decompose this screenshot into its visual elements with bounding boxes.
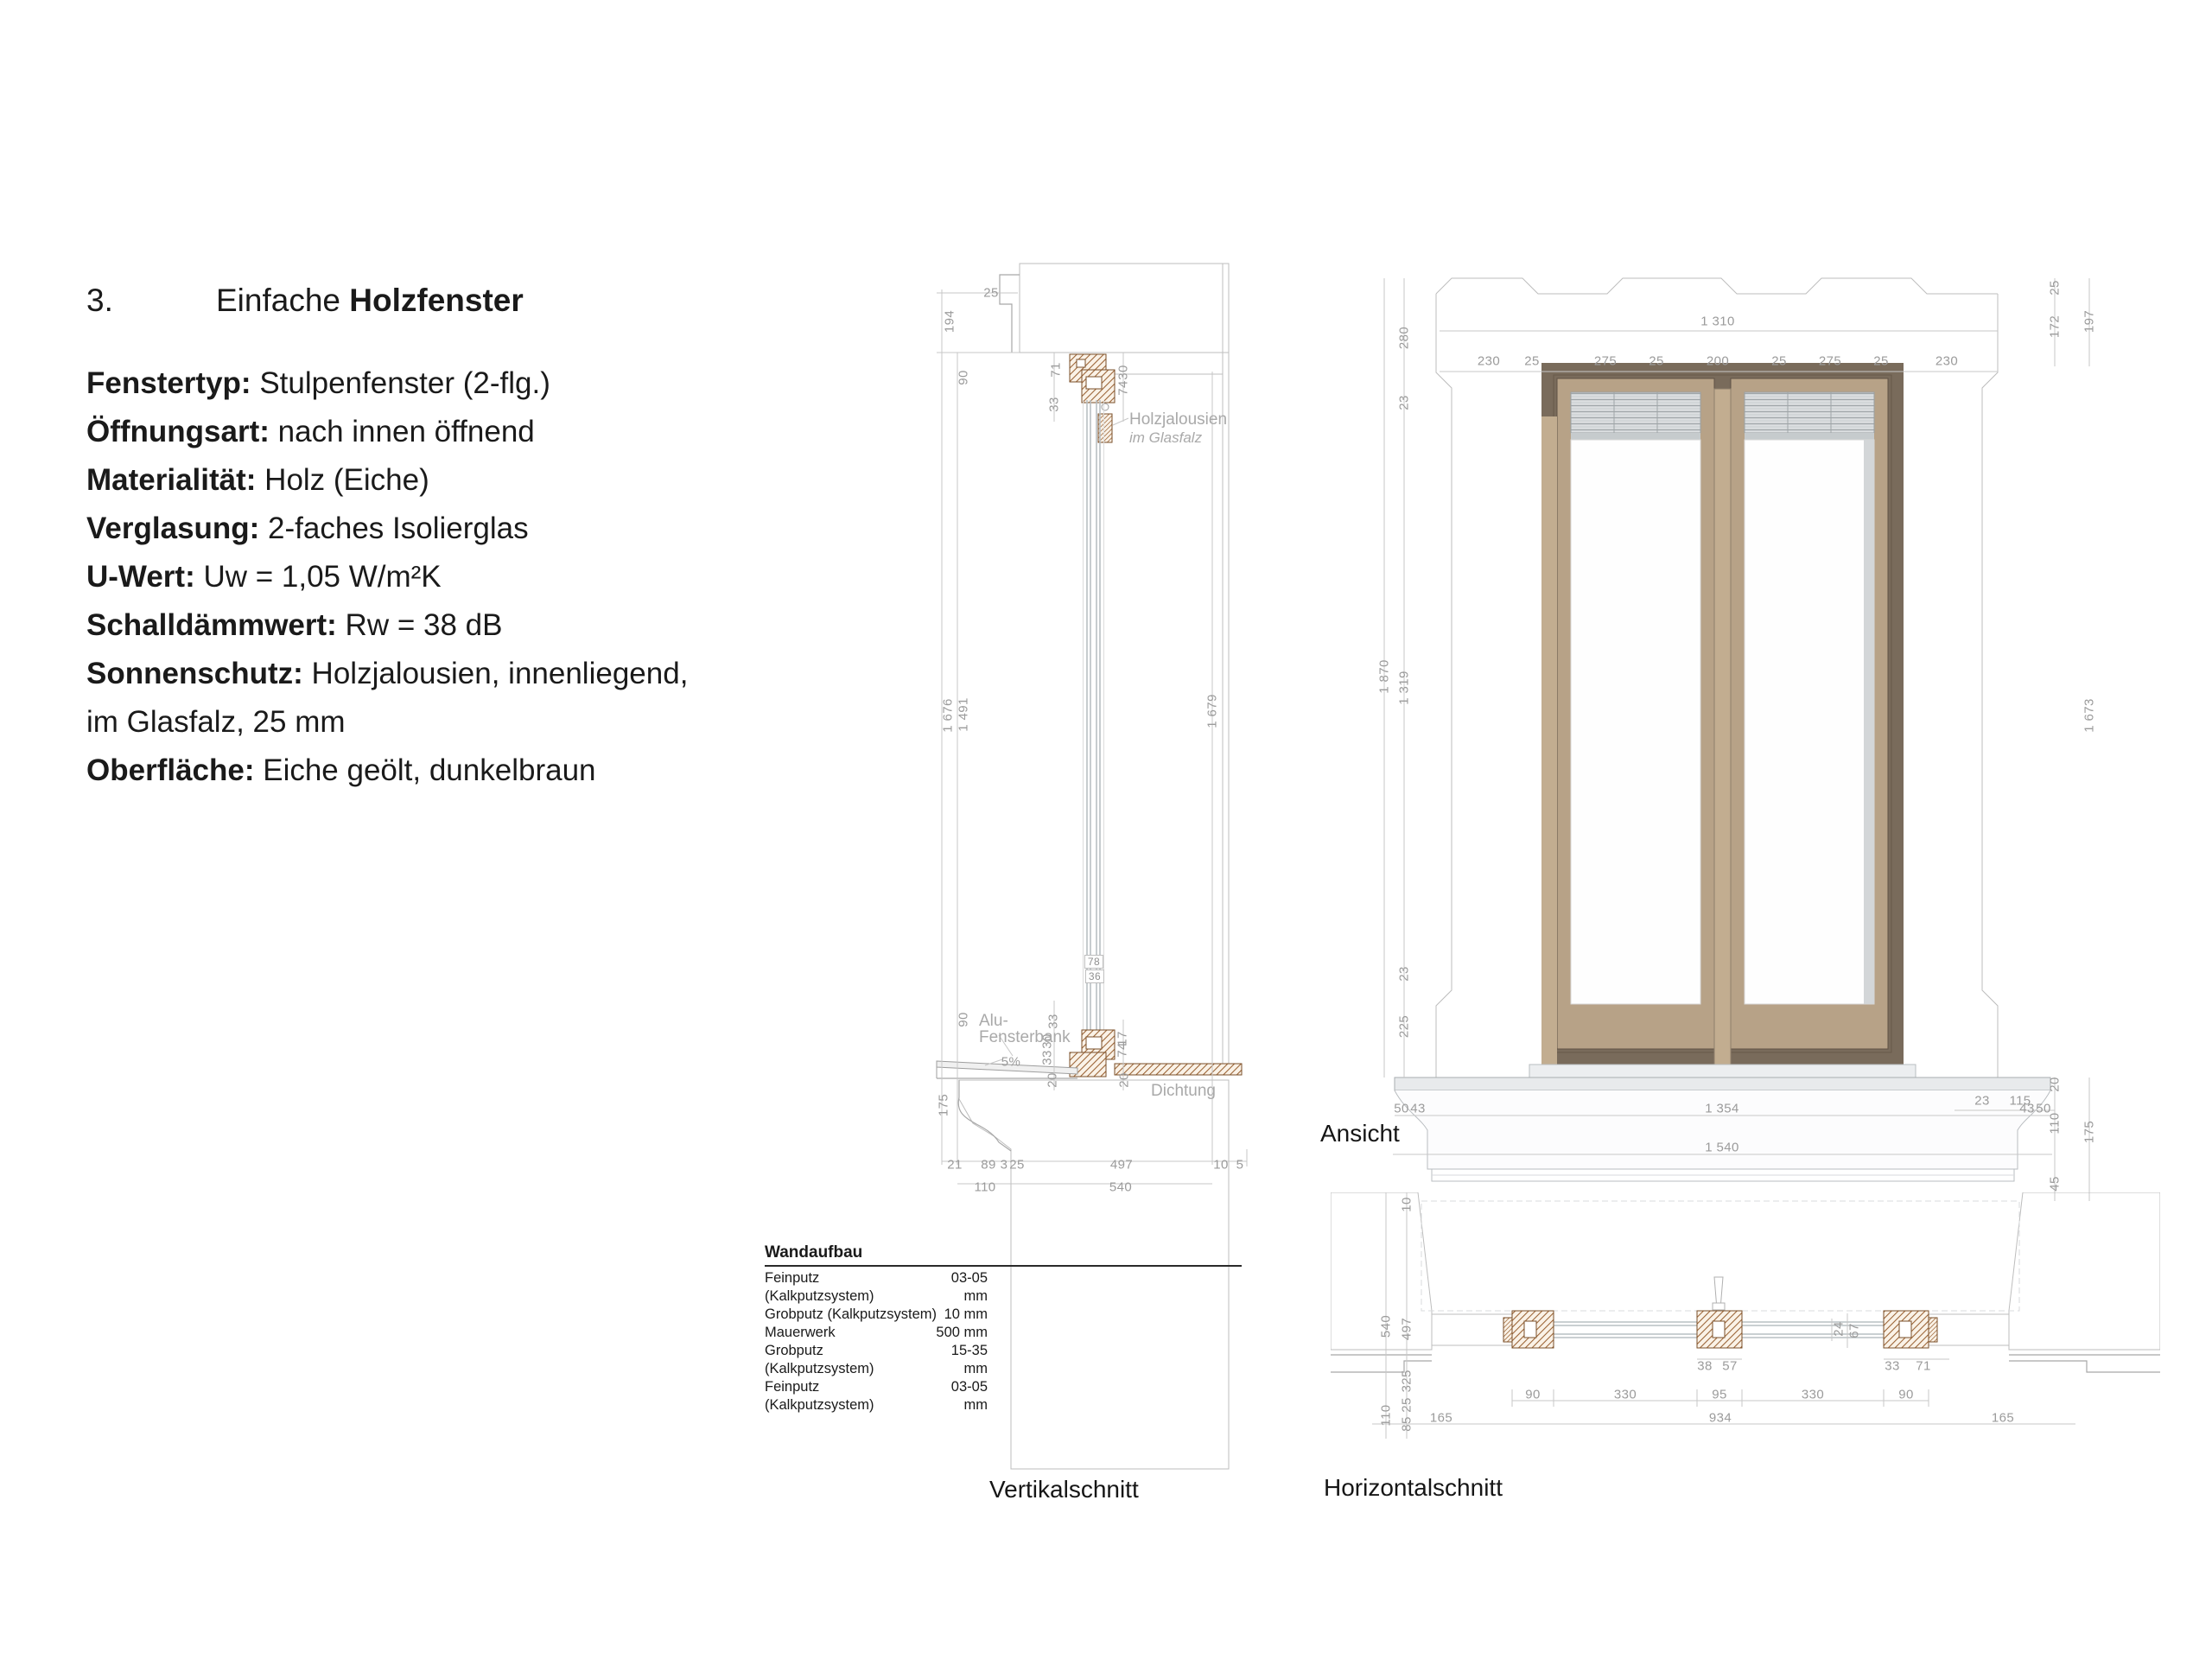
dim-label: 90 bbox=[957, 1012, 971, 1027]
spec-line: U-Wert: Uw = 1,05 W/m²K bbox=[86, 553, 864, 601]
horizontal-section-label: Horizontalschnitt bbox=[1324, 1474, 1503, 1502]
dim-label: 175 bbox=[2082, 1121, 2097, 1143]
dim-label: 71 bbox=[1916, 1359, 1931, 1374]
dim-label: 89 bbox=[981, 1158, 996, 1173]
spec-line: Öffnungsart: nach innen öffnend bbox=[86, 408, 864, 456]
dim-label: 10 bbox=[1400, 1197, 1414, 1212]
page: 3.Einfache Holzfenster Fenstertyp: Stulp… bbox=[0, 0, 2212, 1659]
dim-label: 3 bbox=[1001, 1158, 1008, 1173]
dim-label: 25 bbox=[1771, 354, 1787, 369]
dim-label: 25 bbox=[1524, 354, 1540, 369]
dim-label: 275 bbox=[1819, 354, 1841, 369]
window-elevation bbox=[1541, 363, 1904, 1065]
jamb-overlay bbox=[1541, 416, 1557, 1065]
annotation-label: Holzjalousien bbox=[1129, 410, 1227, 429]
dim-label: 36 bbox=[1085, 969, 1104, 983]
dim-label: 165 bbox=[1992, 1411, 2014, 1426]
legend-row: Mauerwerk500 mm bbox=[765, 1324, 988, 1342]
dim-label: 25 bbox=[1400, 1397, 1414, 1413]
dim-label: 10 bbox=[1213, 1158, 1229, 1173]
dim-label: 50 bbox=[1394, 1102, 1409, 1116]
dim-label: 110 bbox=[1379, 1404, 1394, 1426]
dim-label: 165 bbox=[1430, 1411, 1452, 1426]
sill-frame-wood bbox=[1070, 1030, 1242, 1077]
spec-line: Verglasung: 2-faches Isolierglas bbox=[86, 505, 864, 553]
dim-label: 21 bbox=[947, 1158, 963, 1173]
sill-elevation bbox=[1395, 1065, 2050, 1181]
glass-pane bbox=[1084, 400, 1104, 1030]
dim-label: 25 bbox=[1649, 354, 1664, 369]
spec-line: Oberfläche: Eiche geölt, dunkelbraun bbox=[86, 747, 864, 795]
legend-rows: Feinputz (Kalkputzsystem)03-05 mmGrobput… bbox=[765, 1269, 1249, 1414]
dim-label: 1 676 bbox=[941, 698, 956, 733]
dim-label: 25 bbox=[1009, 1158, 1025, 1173]
title-prefix: Einfache bbox=[216, 283, 349, 318]
dim-label: 1 319 bbox=[1397, 671, 1412, 705]
title-number: 3. bbox=[86, 282, 216, 320]
spec-line: Schalldämmwert: Rw = 38 dB bbox=[86, 601, 864, 650]
spec-line: Sonnenschutz: Holzjalousien, innenliegen… bbox=[86, 650, 864, 698]
legend-rule bbox=[765, 1265, 1242, 1267]
wall-structure-legend: Wandaufbau Feinputz (Kalkputzsystem)03-0… bbox=[765, 1243, 1249, 1414]
dim-label: 78 bbox=[1084, 955, 1103, 969]
legend-row: Grobputz (Kalkputzsystem)15-35 mm bbox=[765, 1342, 988, 1378]
dim-label: 200 bbox=[1707, 354, 1729, 369]
dim-label: 225 bbox=[1397, 1015, 1412, 1038]
dim-label: 1 310 bbox=[1700, 315, 1735, 329]
dim-label: 71 bbox=[1049, 362, 1064, 378]
dim-label: 330 bbox=[1802, 1388, 1824, 1402]
spec-line: im Glasfalz, 25 mm bbox=[86, 698, 864, 747]
dim-label: 1 673 bbox=[2082, 698, 2097, 733]
dim-label: 33 bbox=[1885, 1359, 1900, 1374]
dim-label: 33 bbox=[1040, 1050, 1055, 1065]
dim-label: 85 bbox=[1400, 1416, 1414, 1432]
dim-label: 1 679 bbox=[1205, 694, 1220, 728]
horizontal-section-drawing: Horizontalschnitt 1054049725311025853857… bbox=[1331, 1192, 2160, 1547]
dim-label: 57 bbox=[1722, 1359, 1738, 1374]
dim-label: 20 bbox=[1117, 1072, 1132, 1088]
dim-label: 45 bbox=[2048, 1176, 2063, 1192]
dim-label: 194 bbox=[943, 310, 957, 333]
glass-left bbox=[1571, 440, 1700, 1004]
handle-icon bbox=[1713, 1277, 1725, 1310]
dim-label: 23 bbox=[1974, 1094, 1990, 1109]
window-board-seal bbox=[1115, 1064, 1242, 1075]
page-title: 3.Einfache Holzfenster bbox=[86, 282, 864, 320]
spec-block: 3.Einfache Holzfenster Fenstertyp: Stulp… bbox=[86, 282, 864, 795]
title-bold: Holzfenster bbox=[349, 283, 523, 318]
vertical-section-label: Vertikalschnitt bbox=[989, 1476, 1139, 1503]
spec-line: Fenstertyp: Stulpenfenster (2-flg.) bbox=[86, 359, 864, 408]
dim-label: 90 bbox=[957, 370, 971, 385]
dim-label: 540 bbox=[1109, 1180, 1132, 1195]
dim-label: 197 bbox=[2082, 310, 2097, 333]
dim-label: 43 bbox=[1410, 1102, 1426, 1116]
elevation-drawing: Ansicht 1 310230252752520025275252302802… bbox=[1331, 259, 2152, 1262]
dim-label: 172 bbox=[2048, 315, 2063, 338]
dim-label: 74 bbox=[1116, 1042, 1130, 1058]
dim-label: 110 bbox=[2048, 1112, 2063, 1134]
dim-label: 280 bbox=[1397, 327, 1412, 349]
window-plan bbox=[1432, 1277, 2009, 1348]
dim-label: 23 bbox=[1397, 395, 1412, 410]
dim-label: 230 bbox=[1478, 354, 1500, 369]
dim-label: 275 bbox=[1594, 354, 1617, 369]
dim-label: 38 bbox=[1697, 1359, 1713, 1374]
dim-label: 540 bbox=[1379, 1315, 1394, 1338]
dim-label: 43 bbox=[2019, 1102, 2035, 1116]
dim-label: 3 bbox=[1400, 1385, 1414, 1393]
blind-right bbox=[1745, 392, 1874, 433]
lintel-hatch bbox=[1000, 264, 1229, 353]
dim-label: 30 bbox=[1116, 365, 1131, 380]
dim-label: 497 bbox=[1110, 1158, 1133, 1173]
dim-label: 33 bbox=[1046, 1014, 1061, 1029]
dim-label: 5 bbox=[1236, 1158, 1244, 1173]
dim-label: 95 bbox=[1712, 1388, 1727, 1402]
dim-label: 20 bbox=[2048, 1077, 2063, 1092]
frame-blocks bbox=[1503, 1311, 1937, 1348]
dim-label: 1 540 bbox=[1705, 1141, 1739, 1155]
dim-label: 90 bbox=[1525, 1388, 1541, 1402]
dim-label: 1 491 bbox=[957, 697, 971, 732]
annotation-label: Dichtung bbox=[1151, 1082, 1216, 1101]
dim-label: 67 bbox=[1847, 1323, 1862, 1338]
legend-row: Feinputz (Kalkputzsystem)03-05 mm bbox=[765, 1269, 988, 1306]
dim-label: 24 bbox=[1832, 1321, 1847, 1337]
dim-label: 5% bbox=[1001, 1055, 1020, 1070]
dim-label: 20 bbox=[1046, 1072, 1060, 1088]
interior-wall-face bbox=[1115, 264, 1229, 1065]
blind-left bbox=[1571, 392, 1700, 433]
wall-right bbox=[2009, 1192, 2160, 1372]
dim-label: 497 bbox=[1400, 1318, 1414, 1340]
dim-label: 1 870 bbox=[1377, 659, 1392, 694]
dim-label: 90 bbox=[1898, 1388, 1914, 1402]
dim-label: 25 bbox=[983, 286, 999, 301]
legend-row: Feinputz (Kalkputzsystem)03-05 mm bbox=[765, 1378, 988, 1414]
spec-list: Fenstertyp: Stulpenfenster (2-flg.)Öffnu… bbox=[86, 359, 864, 795]
dim-label: 934 bbox=[1709, 1411, 1732, 1426]
dim-label: 110 bbox=[974, 1180, 995, 1195]
annotation-label: Fensterbank bbox=[979, 1028, 1071, 1047]
dim-label: 1 354 bbox=[1705, 1102, 1739, 1116]
glass-right bbox=[1745, 440, 1874, 1004]
dim-label: 25 bbox=[1873, 354, 1889, 369]
dim-label: 230 bbox=[1935, 354, 1958, 369]
legend-row: Grobputz (Kalkputzsystem)10 mm bbox=[765, 1306, 988, 1324]
wall-left bbox=[1331, 1192, 1432, 1372]
dim-label: 25 bbox=[1400, 1370, 1414, 1385]
annotation-label: im Glasfalz bbox=[1129, 429, 1202, 447]
dim-label: 33 bbox=[1047, 397, 1062, 412]
mullion bbox=[1714, 389, 1731, 1065]
dim-label: 23 bbox=[1397, 966, 1412, 982]
blind-roller-icon bbox=[1102, 404, 1109, 410]
dim-label: 330 bbox=[1614, 1388, 1637, 1402]
spec-line: Materialität: Holz (Eiche) bbox=[86, 456, 864, 505]
dim-label: 74 bbox=[1116, 380, 1131, 396]
legend-title: Wandaufbau bbox=[765, 1243, 1249, 1263]
dim-label: 175 bbox=[937, 1094, 951, 1116]
elevation-label: Ansicht bbox=[1320, 1120, 1400, 1147]
dim-label: 25 bbox=[2048, 280, 2063, 296]
